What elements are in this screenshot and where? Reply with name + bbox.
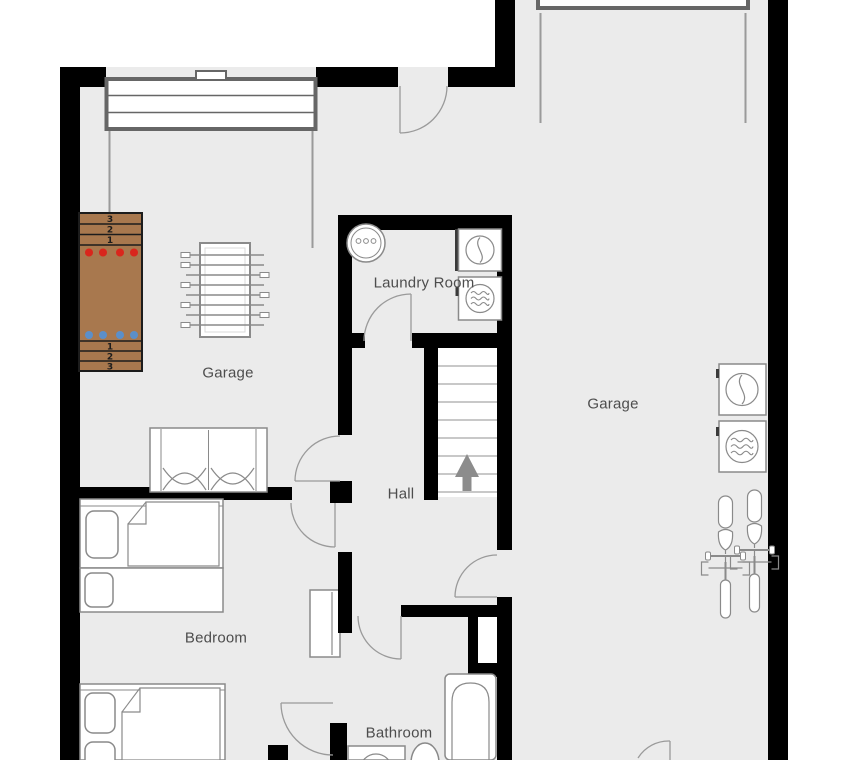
garage-washer[interactable]	[716, 421, 766, 472]
score-top-2: 2	[107, 226, 113, 236]
score-bottom-2: 2	[107, 353, 113, 363]
niche	[478, 617, 497, 663]
garage-dryer[interactable]	[716, 364, 766, 415]
bathtub[interactable]	[445, 674, 496, 760]
double-bed-bottom[interactable]	[80, 684, 225, 760]
score-top-1: 1	[107, 236, 113, 246]
double-bed-top[interactable]	[150, 428, 267, 492]
room-label-garage-right: Garage	[587, 396, 638, 413]
room-label-laundry: Laundry Room	[374, 275, 475, 292]
dresser[interactable]	[310, 590, 340, 657]
laundry-dryer[interactable]	[455, 229, 502, 271]
floor-plan-drawing: 3 2 1 1 2 3	[0, 0, 848, 760]
score-top-3: 3	[107, 215, 113, 225]
utility-sink[interactable]	[347, 224, 385, 262]
score-bottom-1: 1	[107, 343, 113, 353]
single-bed-2[interactable]	[80, 568, 223, 612]
score-bottom-3: 3	[107, 363, 113, 373]
bathroom-washer[interactable]	[348, 746, 405, 760]
floor-plan: 3 2 1 1 2 3	[0, 0, 848, 760]
room-label-garage-left: Garage	[202, 365, 253, 382]
room-label-bedroom: Bedroom	[185, 630, 247, 647]
shuffleboard-table[interactable]: 3 2 1 1 2 3	[79, 213, 142, 373]
staircase[interactable]	[438, 348, 497, 497]
room-label-hall: Hall	[388, 486, 415, 503]
room-label-bathroom: Bathroom	[366, 725, 433, 742]
single-bed-1[interactable]	[80, 499, 223, 568]
